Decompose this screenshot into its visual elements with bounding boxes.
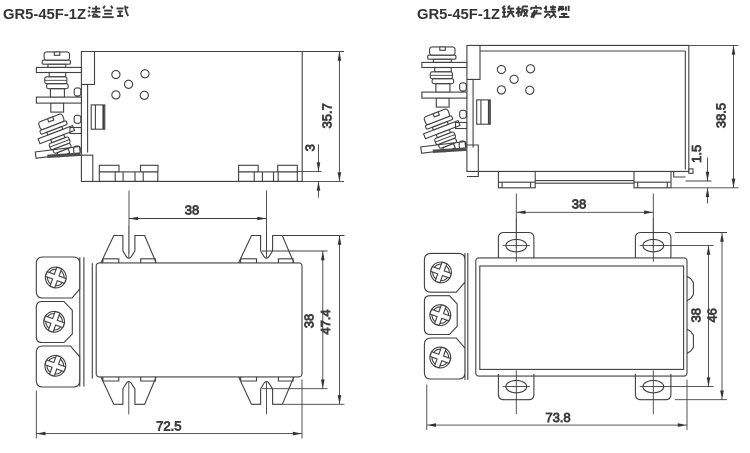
svg-text:3: 3 <box>303 144 318 151</box>
svg-text:46: 46 <box>705 308 720 322</box>
svg-text:72.5: 72.5 <box>156 418 181 433</box>
svg-text:38: 38 <box>301 314 316 328</box>
svg-text:35.7: 35.7 <box>320 103 335 128</box>
svg-text:38: 38 <box>572 196 586 211</box>
svg-text:38.5: 38.5 <box>714 103 729 128</box>
svg-text:GR5-45F-1Z: GR5-45F-1Z <box>3 6 86 23</box>
svg-text:38: 38 <box>689 308 704 322</box>
svg-text:38: 38 <box>185 203 199 218</box>
svg-text:47.4: 47.4 <box>318 309 333 334</box>
svg-text:1.5: 1.5 <box>689 145 704 163</box>
svg-text:73.8: 73.8 <box>545 410 570 425</box>
svg-text:GR5-45F-1Z: GR5-45F-1Z <box>417 6 500 23</box>
